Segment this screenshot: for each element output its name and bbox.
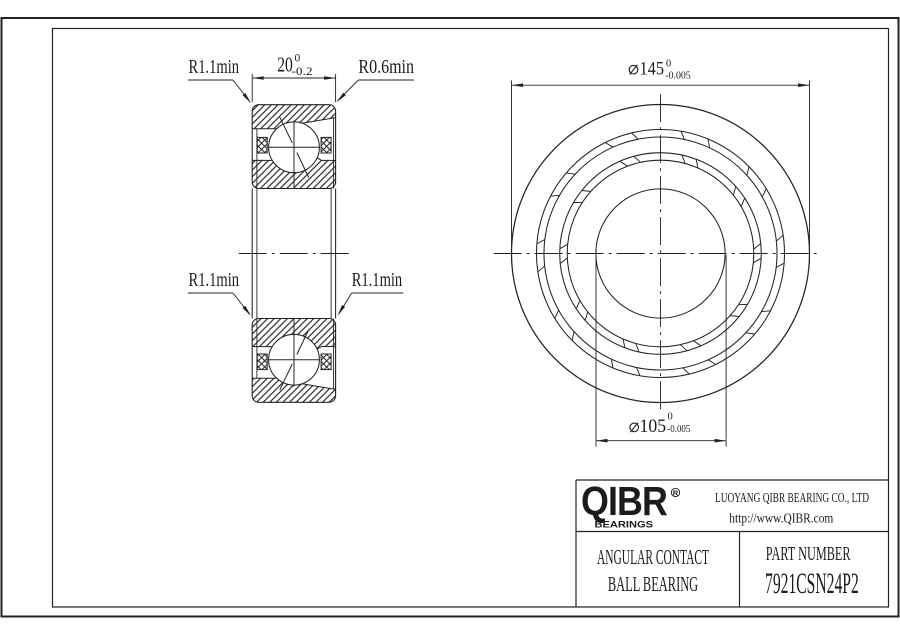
svg-text:R1.1min: R1.1min <box>189 269 240 291</box>
svg-text:R: R <box>673 488 679 497</box>
svg-text:105: 105 <box>640 416 667 437</box>
svg-text:BALL BEARING: BALL BEARING <box>608 572 698 596</box>
svg-text:R0.6min: R0.6min <box>358 56 414 78</box>
svg-text:http://www.QIBR.com: http://www.QIBR.com <box>729 510 834 525</box>
svg-text:R1.1min: R1.1min <box>352 269 403 291</box>
svg-text:0: 0 <box>295 53 301 65</box>
svg-text:7921CSN24P2: 7921CSN24P2 <box>765 568 859 600</box>
svg-text:LUOYANG QIBR BEARING CO., LTD: LUOYANG QIBR BEARING CO., LTD <box>715 490 869 505</box>
svg-text:20: 20 <box>277 53 293 77</box>
svg-text:-0.2: -0.2 <box>292 66 313 78</box>
svg-text:0: 0 <box>666 59 671 70</box>
svg-text:ANGULAR CONTACT: ANGULAR CONTACT <box>597 545 709 569</box>
svg-text:0: 0 <box>668 411 673 422</box>
svg-text:145: 145 <box>640 59 665 80</box>
svg-text:R1.1min: R1.1min <box>189 56 240 78</box>
svg-text:-0.005: -0.005 <box>665 71 690 82</box>
svg-text:QIBR: QIBR <box>581 478 668 524</box>
svg-text:PART NUMBER: PART NUMBER <box>766 544 851 565</box>
svg-text:-0.005: -0.005 <box>667 424 690 435</box>
svg-text:BEARINGS: BEARINGS <box>595 519 654 530</box>
